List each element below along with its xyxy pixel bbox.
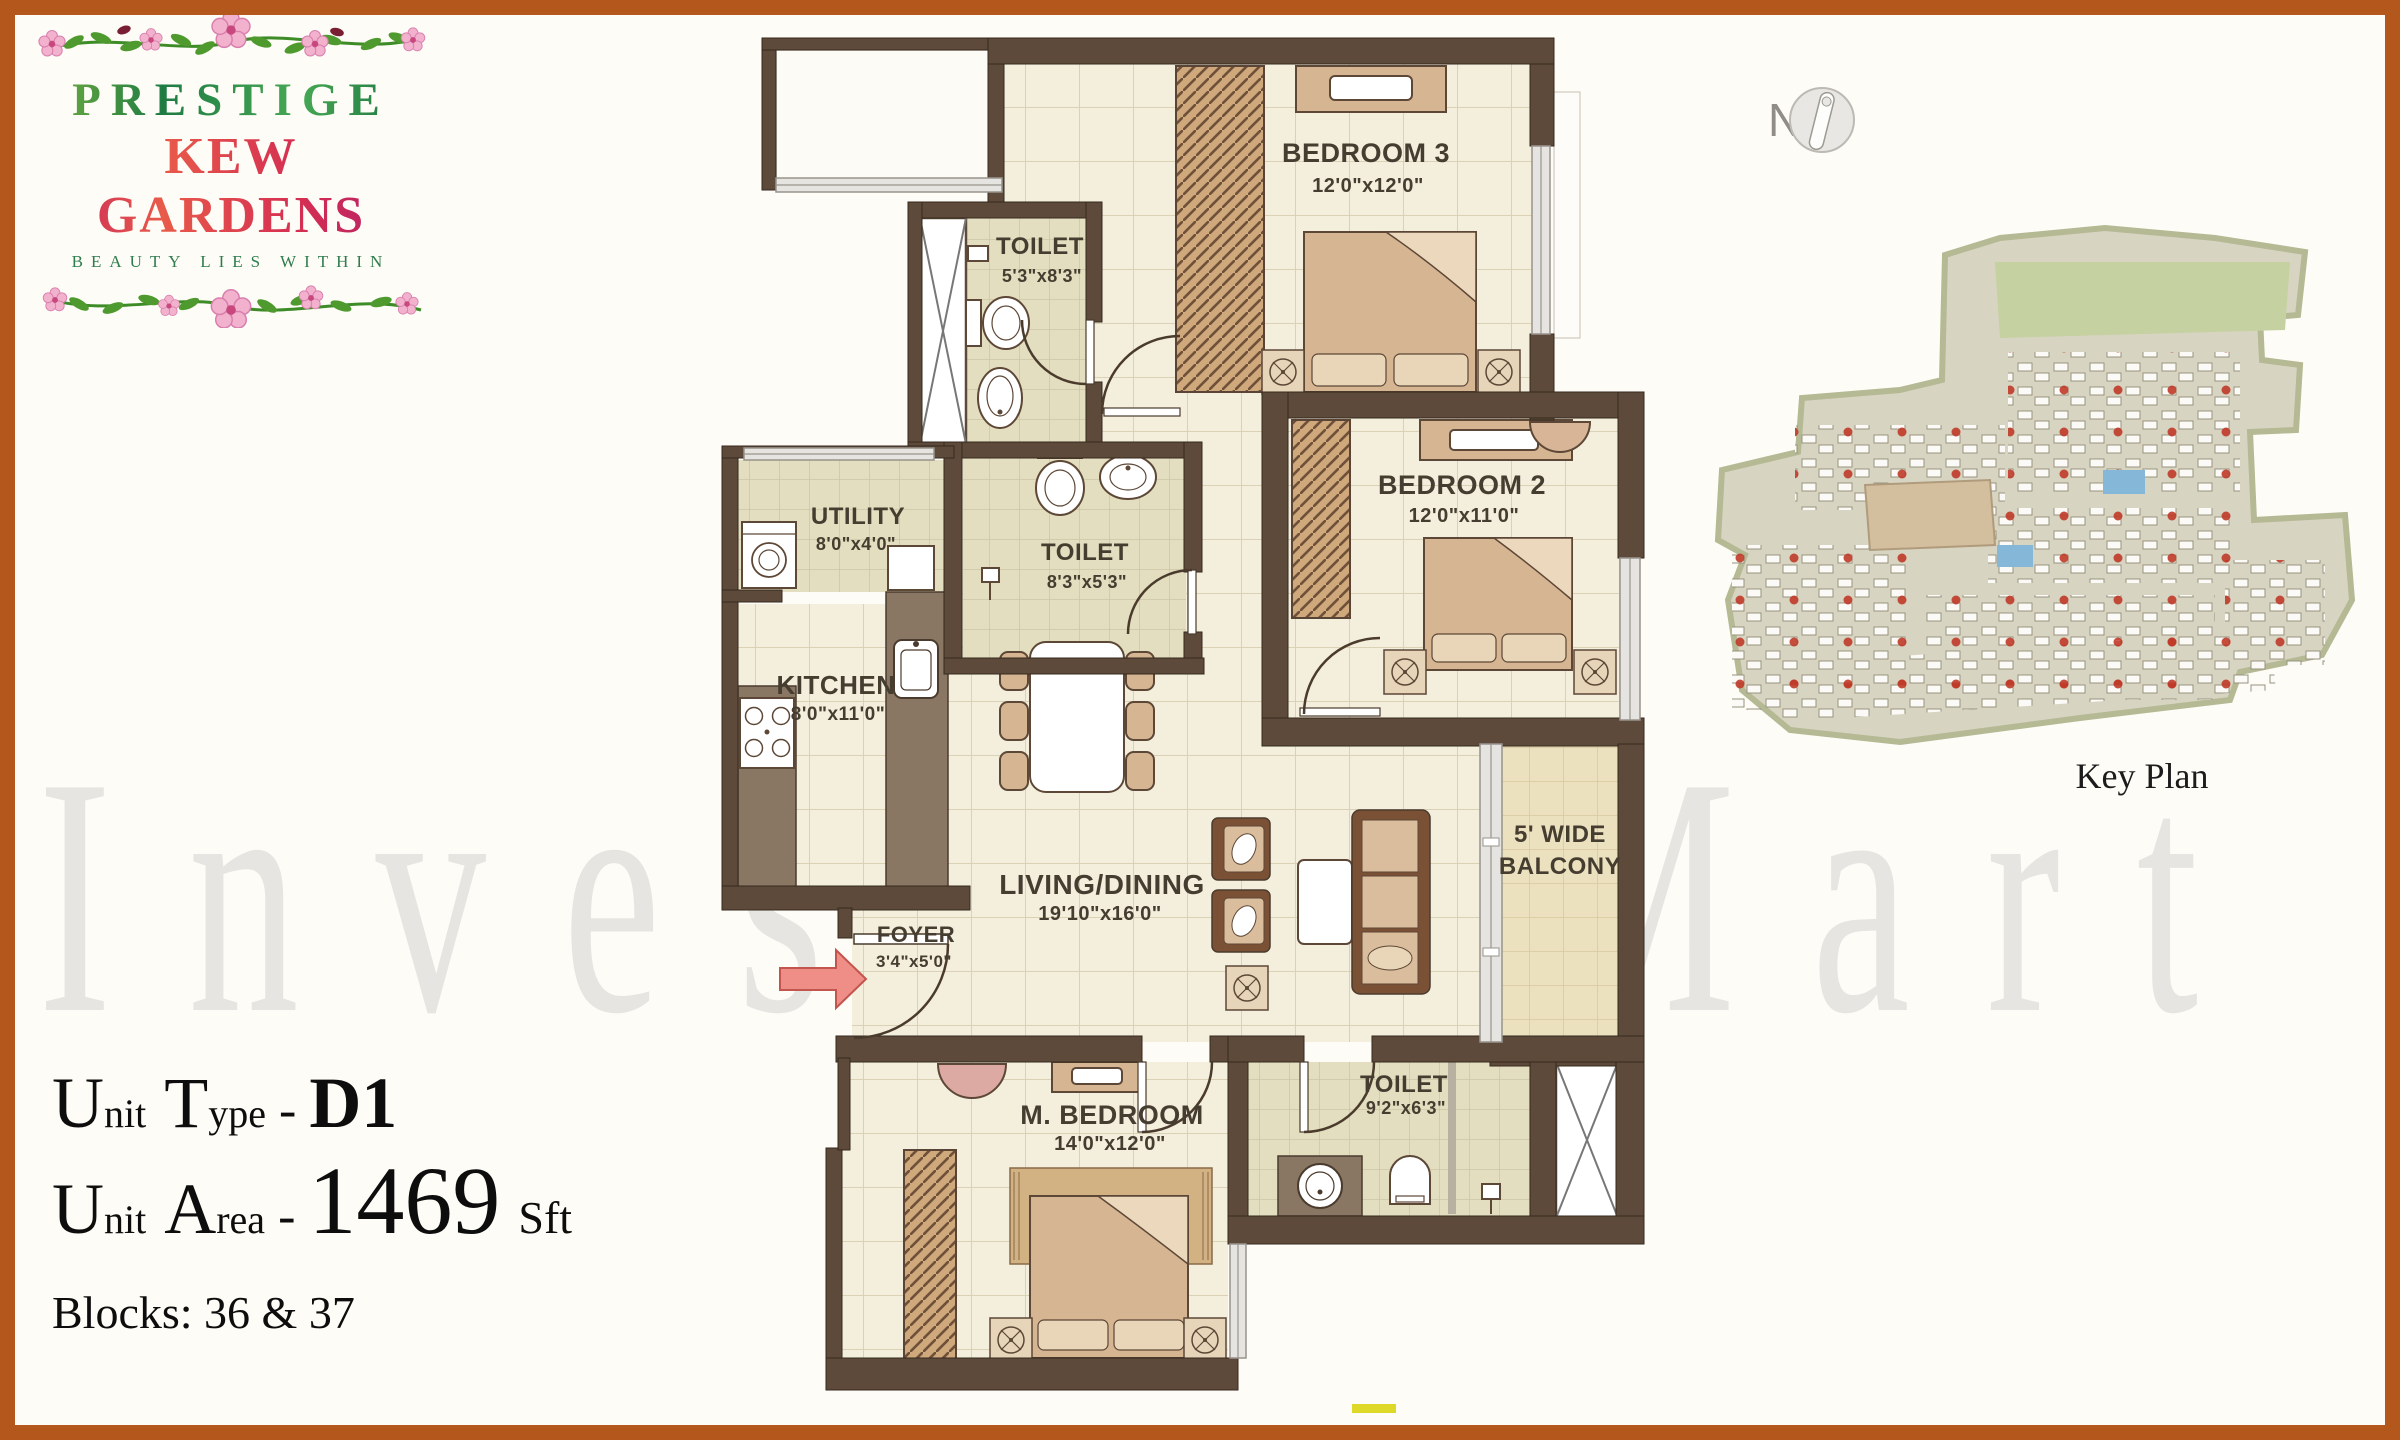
stove-icon	[740, 698, 794, 768]
logo-title: PRESTIGE	[26, 75, 436, 127]
unit-area-suffix: Sft	[518, 1192, 572, 1243]
basin-icon	[1298, 1164, 1342, 1208]
unit-area-small1: nit	[104, 1197, 146, 1242]
ceiling-fan-icon	[1574, 650, 1616, 694]
key-plan-label: Key Plan	[2076, 756, 2209, 796]
room-label-utility: UTILITY	[811, 503, 905, 530]
unit-type-small1: nit	[104, 1091, 146, 1136]
bed-icon	[1304, 232, 1476, 392]
unit-area-cap1: U	[52, 1169, 104, 1249]
ceiling-fan-icon	[1184, 1318, 1226, 1362]
ceiling-fan-icon	[1478, 350, 1520, 394]
room-dims-living: 19'10"x16'0"	[1038, 903, 1161, 925]
coffee-table-icon	[1298, 860, 1352, 944]
room-dims-toilet1: 5'3"x8'3"	[1002, 266, 1082, 286]
room-label-mtoilet: TOILET	[1360, 1071, 1448, 1098]
room-dims-toilet2: 8'3"x5'3"	[1047, 572, 1127, 592]
yellow-mark	[1352, 1404, 1396, 1413]
room-dims-bedroom2: 12'0"x11'0"	[1409, 505, 1520, 527]
ceiling-fan-icon	[1226, 966, 1268, 1010]
logo-subtitle: KEW GARDENS	[26, 127, 436, 247]
unit-type-line: UnitType - D1	[52, 1062, 572, 1145]
shaft-2	[1556, 1062, 1618, 1218]
ceiling-fan-icon	[1262, 350, 1304, 394]
logo: PRESTIGE KEW GARDENS BEAUTY LIES WITHIN	[26, 10, 436, 333]
window-icon	[1532, 146, 1550, 334]
room-label-bedroom3: BEDROOM 3	[1282, 138, 1450, 168]
lawn-area	[1995, 262, 2290, 338]
sliding-door-icon	[1480, 744, 1502, 1042]
shower-partition	[1448, 1062, 1456, 1214]
pool-icon	[1997, 545, 2033, 567]
basin-icon	[1100, 455, 1156, 499]
room-dims-kitchen: 8'0"x11'0"	[791, 704, 885, 725]
room-label-balcony-1: 5' WIDE	[1514, 821, 1606, 848]
wc-icon	[966, 297, 1029, 349]
room-dims-mtoilet: 9'2"x6'3"	[1366, 1098, 1446, 1118]
bed-icon	[1030, 1196, 1188, 1358]
washing-machine-icon	[742, 522, 796, 588]
unit-area-cap2: A	[164, 1169, 216, 1249]
ceiling-fan-icon	[1384, 650, 1426, 694]
room-label-toilet1: TOILET	[996, 233, 1084, 260]
sink-icon	[894, 640, 938, 698]
room-label-living: LIVING/DINING	[999, 869, 1205, 900]
room-label-balcony-2: BALCONY	[1499, 853, 1621, 880]
room-label-toilet2: TOILET	[1041, 539, 1129, 566]
unit-type-value: D1	[309, 1063, 397, 1143]
room-label-foyer: FOYER	[877, 922, 955, 947]
wall-basin-icon	[968, 246, 988, 261]
floral-garland-bottom-icon	[29, 276, 434, 328]
unit-area-dash: -	[278, 1188, 295, 1245]
logo-tagline: BEAUTY LIES WITHIN	[26, 252, 436, 272]
north-indicator: N	[1768, 88, 1854, 152]
unit-type-small2: ype	[208, 1091, 266, 1136]
blocks-line: Blocks: 36 & 37	[52, 1286, 572, 1339]
room-dims-mbedroom: 14'0"x12'0"	[1054, 1133, 1166, 1155]
room-dims-utility: 8'0"x4'0"	[816, 534, 896, 554]
shaft-1	[920, 218, 966, 444]
room-label-kitchen: KITCHEN	[776, 670, 895, 700]
unit-area-line: UnitArea - 1469Sft	[52, 1145, 572, 1256]
unit-type-cap2: T	[164, 1063, 208, 1143]
bed-icon	[1424, 538, 1572, 670]
room-dims-foyer: 3'4"x5'0"	[876, 952, 952, 971]
pool-icon	[2103, 470, 2145, 494]
ceiling-fan-icon	[990, 1318, 1032, 1362]
room-label-mbedroom: M. BEDROOM	[1020, 1100, 1204, 1130]
basin-icon	[978, 368, 1022, 428]
kitchen-platform	[886, 592, 948, 890]
room-label-bedroom2: BEDROOM 2	[1378, 470, 1546, 500]
window-icon	[776, 178, 1002, 192]
unit-area-value: 1469	[308, 1147, 500, 1254]
window-icon	[1620, 558, 1640, 720]
unit-info: UnitType - D1 UnitArea - 1469Sft Blocks:…	[52, 1062, 572, 1339]
window-icon	[744, 448, 934, 460]
floral-garland-top-icon	[29, 10, 434, 70]
key-plan-map	[1718, 228, 2352, 742]
unit-area-small2: rea	[216, 1197, 265, 1242]
unit-type-dash: -	[279, 1082, 296, 1139]
unit-type-cap1: U	[52, 1063, 104, 1143]
clubhouse-building	[1865, 480, 1995, 550]
window-icon	[1230, 1244, 1246, 1358]
room-dims-bedroom3: 12'0"x12'0"	[1312, 175, 1424, 197]
